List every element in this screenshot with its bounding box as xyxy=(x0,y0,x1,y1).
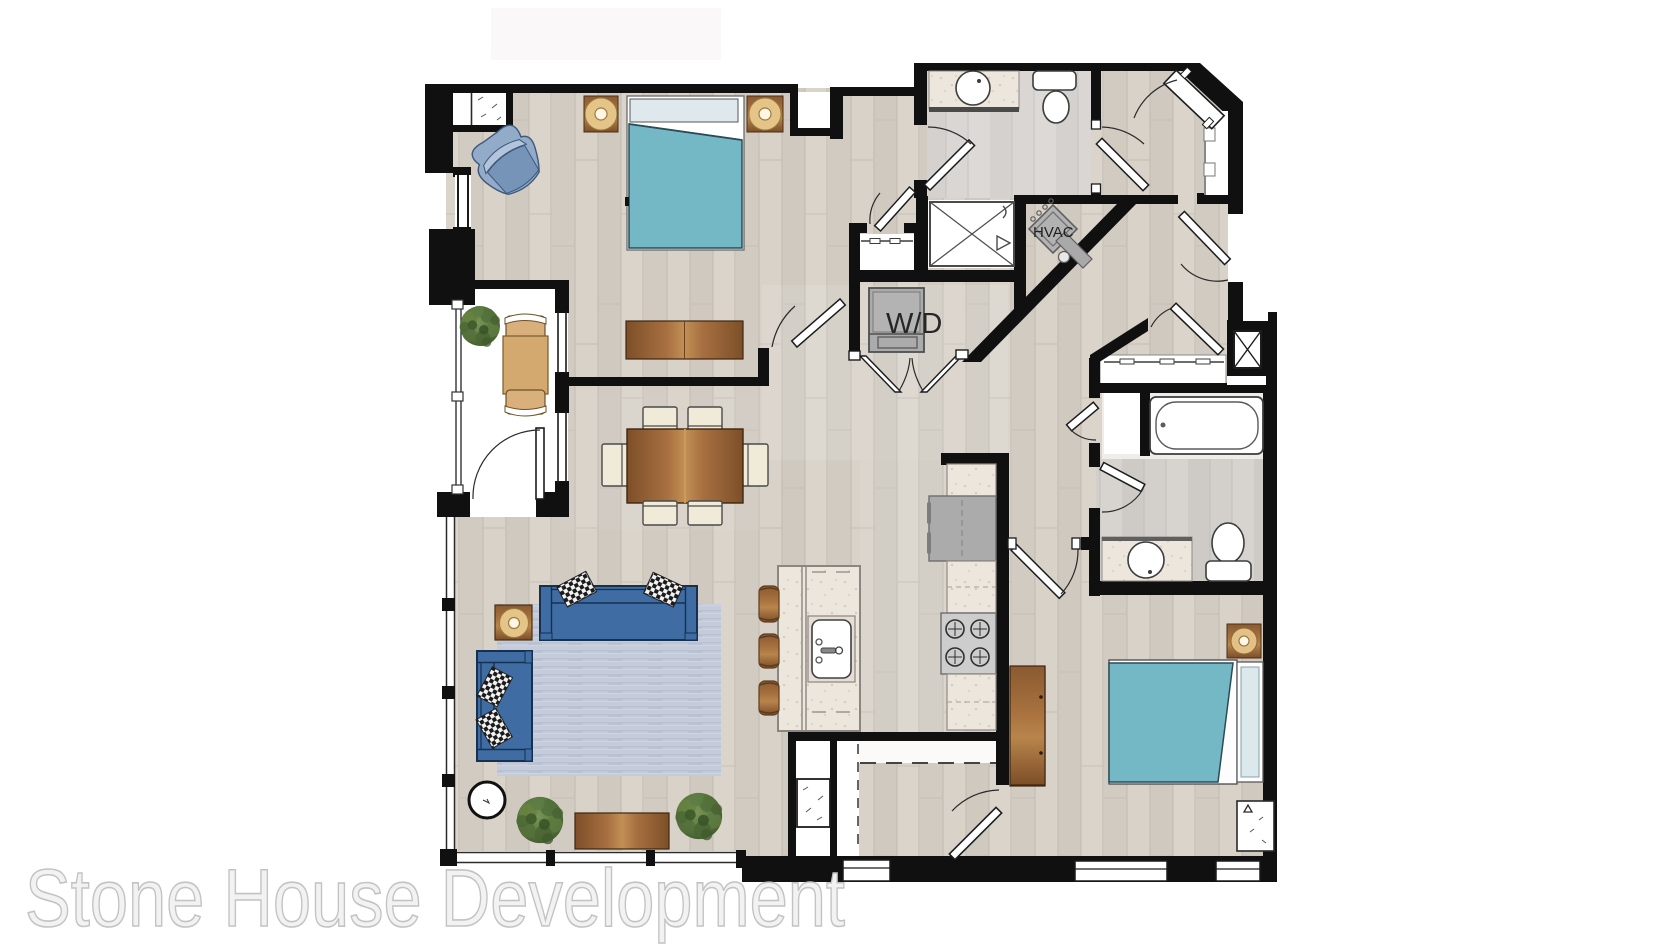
svg-text:W/D: W/D xyxy=(886,308,942,340)
svg-text:HVAC: HVAC xyxy=(1033,224,1074,241)
svg-text:Stone House Development: Stone House Development xyxy=(25,853,845,944)
